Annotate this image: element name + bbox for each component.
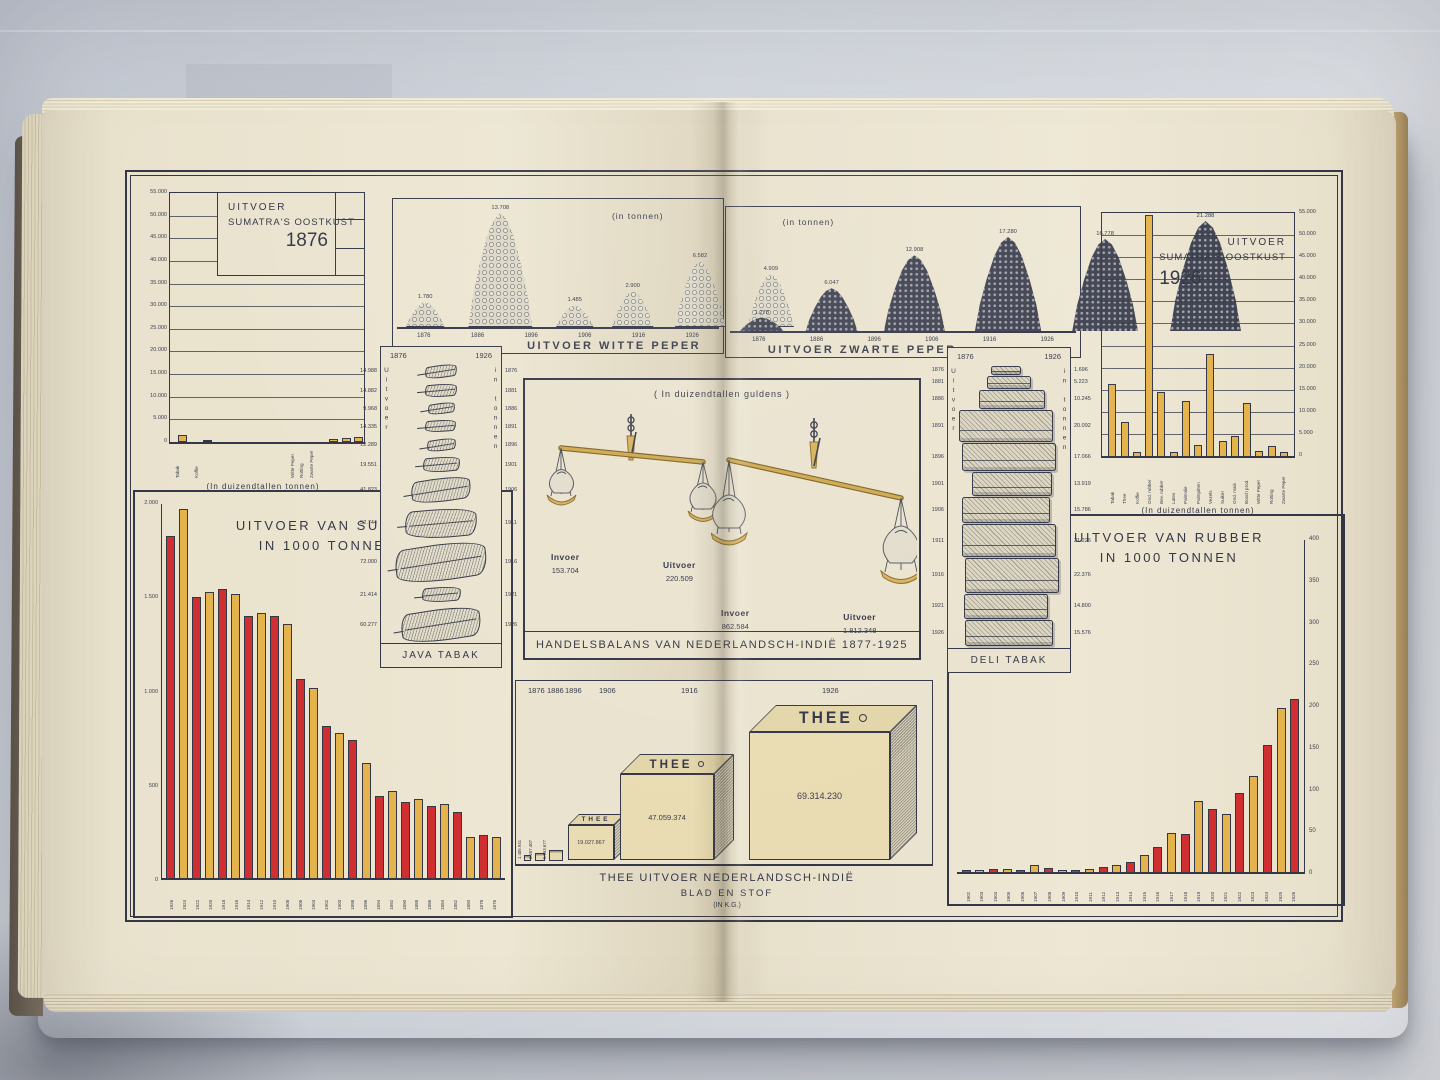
leaf-vein <box>428 425 455 428</box>
tobacco-bale <box>987 376 1031 389</box>
tobacco-leaf <box>422 456 460 474</box>
y-axis-tick: 1.000 <box>137 689 158 695</box>
y-axis-tick: 50.000 <box>140 212 167 218</box>
x-label: Suiker <box>1220 462 1225 504</box>
leaf-vein <box>414 486 467 495</box>
pile-value-label: 13.708 <box>491 205 509 211</box>
x-label: 1888 <box>414 884 419 910</box>
x-label: 1876 <box>492 884 497 910</box>
x-label: 1892 <box>389 884 394 910</box>
y-axis-tick: 50.000 <box>1299 231 1329 237</box>
tobacco-leaf <box>421 586 461 605</box>
bar-1922 <box>1235 793 1244 872</box>
bar-bosch-prod- <box>1243 403 1251 456</box>
pile-slot: 6.047 <box>794 211 870 331</box>
gridline <box>170 397 364 398</box>
row-label-right: 13.919 <box>1074 481 1108 487</box>
gridline <box>170 329 364 330</box>
bar-tabak <box>1108 384 1116 456</box>
bar-1902 <box>322 726 331 878</box>
plot-oostkust-1926: UITVOER SUMATRA'S OOSTKUST 1926 55.00050… <box>1101 212 1295 458</box>
x-label: Rotting <box>299 448 304 478</box>
x-label: 1907 <box>1033 876 1038 902</box>
uitvoer-label: Uitvoer <box>843 612 876 622</box>
bar-1907 <box>1030 865 1039 873</box>
row-label-right: 1901 <box>505 462 539 468</box>
chart-title: DELI TABAK <box>948 648 1070 672</box>
row-label-left: 9.968 <box>341 406 377 412</box>
bar-1915 <box>1140 855 1149 872</box>
x-label: 1896 <box>363 884 368 910</box>
row-label-left: 60.277 <box>341 622 377 628</box>
tobacco-leaf-rows: 14.988187614.88218819.968188614.33518911… <box>395 365 487 641</box>
balance-scale-1925 <box>711 416 917 620</box>
bar-1888 <box>414 799 423 878</box>
x-label: 1918 <box>1183 876 1188 902</box>
row-label-left: 1911 <box>908 538 944 544</box>
invoer-label: Invoer <box>721 608 750 618</box>
y-axis-tick: 25.000 <box>1299 342 1329 348</box>
panel-handelsbalans: ( In duizendtallen guldens ) <box>523 378 921 660</box>
chart-title-line: THEE UITVOER NEDERLANDSCH-INDIË <box>557 872 897 884</box>
x-label: 1922 <box>1237 876 1242 902</box>
chest-front: 69.314.230 <box>749 732 890 860</box>
chart-title-line: IN 1000 TONNEN <box>1059 550 1279 565</box>
row-label-right: 1921 <box>505 592 539 598</box>
row-label-right: 21.226 <box>1074 538 1108 544</box>
pepper-pile-row: 1.78013.7081.4852.9006.5824.909 <box>397 203 719 329</box>
bar-1926 <box>166 536 175 878</box>
y-axis-tick: 10.000 <box>140 393 167 399</box>
invoer-value: 862.584 <box>721 622 750 631</box>
x-label: Witte Peper <box>1256 462 1261 504</box>
bar-1892 <box>388 791 397 878</box>
tea-chest: THEE19.027.867 <box>568 825 614 860</box>
x-label: 1904 <box>993 876 998 902</box>
row-label-right: 22.376 <box>1074 572 1108 578</box>
uitvoer-value: 1.812.348 <box>843 626 876 635</box>
pile-value-label: 12.908 <box>906 247 924 253</box>
bar-bev--rubber <box>1157 392 1165 457</box>
bale-strap <box>966 580 1058 581</box>
x-axis-labels: 1926192419221920191819161914191219101908… <box>161 884 505 912</box>
y-axis-tick: 40.000 <box>1299 275 1329 281</box>
x-label: 1903 <box>979 876 984 902</box>
y-axis-tick: 300 <box>1309 620 1335 626</box>
invoer-value: 153.704 <box>551 566 580 575</box>
bale-strap <box>963 513 1049 514</box>
leaf-vein <box>406 619 477 631</box>
tobacco-leaf <box>427 401 455 416</box>
row-label-left: 1886 <box>908 396 944 402</box>
pile-value-label: 6.582 <box>693 253 708 259</box>
white-pepper-pile <box>453 213 547 327</box>
chart-title: HANDELSBALANS VAN NEDERLANDSCH-INDIË 187… <box>525 631 919 658</box>
y-axis-tick: 30.000 <box>1299 319 1329 325</box>
y-axis-tick: 35.000 <box>1299 297 1329 303</box>
y-axis-tick: 20.000 <box>1299 364 1329 370</box>
x-label: Tabak <box>175 448 180 478</box>
x-label: 1904 <box>311 884 316 910</box>
pictorial-row: 60.2771926 <box>395 609 487 641</box>
thee-chart-title: THEE UITVOER NEDERLANDSCH-INDIË BLAD EN … <box>557 872 897 909</box>
x-label: Witte Peper <box>290 448 295 478</box>
pile-slot: 1.278 <box>730 211 794 331</box>
y-axis-tick: 20.000 <box>140 347 167 353</box>
tobacco-bale <box>965 620 1052 646</box>
x-label: 1884 <box>440 884 445 910</box>
bale-strap <box>992 371 1019 372</box>
bar-1900 <box>335 733 344 878</box>
leaf-vein <box>425 463 457 467</box>
title-box-1876: UITVOER SUMATRA'S OOSTKUST 1876 <box>217 192 365 276</box>
bar-1908 <box>1044 868 1053 872</box>
x-axis-labels: TabakTheeKoffieOnd. rubberBev. rubberLat… <box>1103 462 1293 504</box>
y-axis-tick: 150 <box>1309 745 1335 751</box>
x-label: 1900 <box>337 884 342 910</box>
y-axis-tick: 100 <box>1309 787 1335 793</box>
leaf-vein <box>429 443 454 448</box>
panel-thee: 187618861896190619161926 1.405.9413.267.… <box>515 680 933 866</box>
x-axis-labels: 1902190319041905190619071908190919101911… <box>957 876 1305 902</box>
tobacco-leaf <box>426 437 456 453</box>
range-end-year: 1926 <box>1044 352 1061 361</box>
x-label: Thee <box>1122 462 1127 504</box>
uitvoer-label: Uitvoer <box>663 560 696 570</box>
uitvoer-value: 220.509 <box>663 574 696 583</box>
bar-1917 <box>1167 833 1176 872</box>
bar-1926 <box>1290 699 1299 872</box>
y-axis-tick: 55.000 <box>1299 209 1329 215</box>
white-pepper-pile <box>397 302 453 327</box>
bar-1909 <box>1058 870 1067 873</box>
bar-1902 <box>962 870 971 872</box>
bar-suiker <box>1219 441 1227 456</box>
row-label-left: 21.414 <box>341 592 377 598</box>
x-label: 1919 <box>1196 876 1201 902</box>
x-label: 1926 <box>1291 876 1296 902</box>
y-axis-tick: 500 <box>137 783 158 789</box>
row-label-left: 19.551 <box>341 462 377 468</box>
white-pepper-pile <box>547 305 602 327</box>
x-label: 1914 <box>1128 876 1133 902</box>
chart-title-year: 1926 <box>1159 268 1286 290</box>
row-label-left: 1916 <box>908 572 944 578</box>
row-label-right: 1906 <box>505 487 539 493</box>
row-label-right: 17.066 <box>1074 454 1108 460</box>
leaf-vein <box>400 555 482 569</box>
y-axis-tick: 15.000 <box>140 370 167 376</box>
bar-koffie <box>203 440 212 442</box>
year-label: 1876 <box>397 333 451 345</box>
bar-1906 <box>296 679 305 878</box>
chest-front: 47.059.374 <box>620 774 714 860</box>
x-label: 1906 <box>1020 876 1025 902</box>
bar-1882 <box>453 812 462 878</box>
bar-1911 <box>1085 869 1094 872</box>
year-label: 1876 <box>528 686 545 695</box>
chart-title: UITVOER VAN RUBBER IN 1000 TONNEN <box>1059 530 1279 570</box>
x-label: 1906 <box>298 884 303 910</box>
tea-chest: THEE69.314.230 <box>749 732 890 860</box>
x-label: 1924 <box>1264 876 1269 902</box>
bar-palmolie <box>1182 401 1190 456</box>
year-label: 1896 <box>565 686 582 695</box>
bar-vezels <box>1206 354 1214 456</box>
bar-1880 <box>466 837 475 878</box>
bar-witte-peper <box>1255 451 1263 456</box>
x-label: Rotting <box>1269 462 1274 504</box>
pile-slot: 13.708 <box>453 203 547 327</box>
year-label: 1906 <box>599 686 616 695</box>
panel-witte-peper: (in tonnen) 1.78013.7081.4852.9006.5824.… <box>392 198 724 354</box>
bar-1921 <box>1222 814 1231 872</box>
bar-1918 <box>218 589 227 878</box>
bar-1905 <box>1003 869 1012 872</box>
title-box-grid <box>335 192 365 276</box>
y-axis-tick: 0 <box>1309 870 1335 876</box>
background-seam <box>0 30 1440 32</box>
leaf-vein <box>409 520 473 527</box>
pile-slot: 1.780 <box>397 203 453 327</box>
x-label: 1914 <box>246 884 251 910</box>
chest-label: THEE <box>582 816 611 823</box>
range-end-year: 1926 <box>475 351 492 360</box>
side-label-uitvoer: Uitvoer <box>383 367 390 434</box>
pictorial-row: 192114.800 <box>962 594 1056 619</box>
row-label-left: 14.988 <box>341 368 377 374</box>
bar-1924 <box>179 509 188 878</box>
x-label: 1915 <box>1142 876 1147 902</box>
pictorial-row: 52.7441911 <box>395 509 487 538</box>
tobacco-bale <box>972 472 1052 496</box>
chart-title-line: SUMATRA'S OOSTKUST <box>1159 252 1286 263</box>
bar-1918 <box>1181 834 1190 872</box>
x-label: 1926 <box>169 884 174 910</box>
y-axis-tick: 0 <box>1299 452 1329 458</box>
x-label: 1886 <box>427 884 432 910</box>
bar-latex <box>1170 452 1178 456</box>
pictorial-row: 190113.919 <box>962 472 1056 496</box>
pile-slot: 2.900 <box>602 203 663 327</box>
row-label-right: 1896 <box>505 442 539 448</box>
x-label: Ond. mais <box>1232 462 1237 504</box>
row-label-right: 15.786 <box>1074 507 1108 513</box>
bar-1920 <box>1208 809 1217 872</box>
leaf-stem <box>418 428 428 430</box>
x-label: 1918 <box>221 884 226 910</box>
tobacco-bale <box>965 558 1059 593</box>
tobacco-leaf <box>425 383 458 398</box>
pile-value-label: 1.278 <box>755 310 770 316</box>
bale-strap <box>965 609 1047 610</box>
side-label-uitvoer: Uitvoer <box>950 368 957 435</box>
pictorial-row: 41.8231906 <box>395 478 487 502</box>
y-axis-tick: 30.000 <box>140 302 167 308</box>
leaf-vein <box>427 389 454 392</box>
bar-1896 <box>362 763 371 878</box>
tobacco-leaf <box>404 506 478 541</box>
tobacco-bale <box>962 443 1056 471</box>
leaf-stem <box>415 466 425 468</box>
pile-value-label: 17.280 <box>999 229 1017 235</box>
bale-strap <box>988 383 1030 384</box>
open-book: UITVOER SUMATRA'S OOSTKUST 1876 55.00050… <box>28 96 1400 1020</box>
x-label: 1916 <box>234 884 239 910</box>
bar-ond--rubber <box>1145 215 1153 456</box>
leaf-stem <box>414 596 424 598</box>
x-label: 1878 <box>479 884 484 910</box>
pictorial-row: 18761.696 <box>962 366 1056 375</box>
pepper-pile-row: 1.2786.04712.90817.28016.77821.288 <box>730 211 1076 333</box>
x-label: Ond. rubber <box>1147 462 1152 504</box>
tobacco-leaf <box>399 603 483 647</box>
title-block-1926: UITVOER SUMATRA'S OOSTKUST 1926 <box>1159 237 1286 290</box>
y-axis-tick: 400 <box>1309 536 1335 542</box>
row-label-left: 1891 <box>908 423 944 429</box>
bar-1910 <box>270 616 279 878</box>
white-pepper-pile <box>602 291 663 327</box>
bar-ond--mais <box>1231 436 1239 456</box>
bar-1903 <box>975 870 984 873</box>
value-label: 1.405.941 <box>517 840 522 859</box>
y-axis-tick: 250 <box>1309 661 1335 667</box>
leaf-stem <box>397 526 407 528</box>
pile-slot: 17.280 <box>959 211 1057 331</box>
y-axis-tick: 5.000 <box>140 415 167 421</box>
x-label: Palmpitten <box>1196 462 1201 504</box>
tea-chest: THEE47.059.374 <box>620 774 714 860</box>
x-label: 1898 <box>350 884 355 910</box>
leaf-stem <box>388 569 398 572</box>
x-label: 1880 <box>466 884 471 910</box>
y-axis-tick: 10.000 <box>1299 408 1329 414</box>
chest-lid: THEE <box>749 705 917 732</box>
leaf-stem <box>394 631 404 634</box>
row-label-right: 15.576 <box>1074 630 1108 636</box>
tobacco-bale <box>959 410 1053 442</box>
bar-1876 <box>492 837 501 878</box>
bar-1906 <box>1016 870 1025 873</box>
row-label-right: 1881 <box>505 388 539 394</box>
bale-strap <box>966 636 1051 637</box>
chart-title-line: BLAD EN STOF <box>557 888 897 899</box>
row-label-right: 10.245 <box>1074 396 1108 402</box>
pile-slot: 1.485 <box>547 203 602 327</box>
x-label: 1910 <box>1074 876 1079 902</box>
year-label: 1916 <box>681 686 698 695</box>
pictorial-row: 12.2891896 <box>395 439 487 451</box>
leaf-vein <box>427 369 454 374</box>
balance-scale-1877 <box>545 412 717 556</box>
gridline <box>170 374 364 375</box>
x-label: 1917 <box>1169 876 1174 902</box>
bar-1898 <box>348 740 357 878</box>
bar-1924 <box>1263 745 1272 872</box>
side-label-in-tonnen: in tonnen <box>492 367 499 453</box>
tobacco-bale <box>991 366 1020 375</box>
bar-1886 <box>427 806 436 878</box>
panel-oostkust-1926: UITVOER SUMATRA'S OOSTKUST 1926 55.00050… <box>1095 202 1345 524</box>
pictorial-row: 19.5511901 <box>395 457 487 472</box>
x-label: Palmolie <box>1183 462 1188 504</box>
x-label: 1902 <box>324 884 329 910</box>
row-label-right: 1876 <box>505 368 539 374</box>
chart-title: UITVOER WITTE PEPER <box>512 340 717 352</box>
row-label-left: 1901 <box>908 481 944 487</box>
chest-label: THEE <box>799 709 853 728</box>
bar-1914 <box>1126 862 1135 872</box>
bale-strap <box>973 487 1051 488</box>
leaf-vein <box>424 593 458 597</box>
x-label: Zwarte Peper <box>1281 462 1286 504</box>
x-label: 1920 <box>208 884 213 910</box>
row-label-left: 1876 <box>908 367 944 373</box>
range-start-year: 1876 <box>957 352 974 361</box>
pictorial-row: 192615.576 <box>962 620 1056 646</box>
bar-1923 <box>1249 776 1258 872</box>
x-label: Tabak <box>1110 462 1115 504</box>
bar-thee <box>1121 422 1129 456</box>
x-label: 1882 <box>453 884 458 910</box>
y-axis-tick: 40.000 <box>140 257 167 263</box>
bar-1910 <box>1071 870 1080 873</box>
pile-value-label: 2.900 <box>625 283 640 289</box>
x-label: 1912 <box>1101 876 1106 902</box>
pictorial-row: 9.9681886 <box>395 403 487 414</box>
bar-koffie <box>1133 452 1141 456</box>
row-label-left: 12.289 <box>341 442 377 448</box>
row-label-left: 1881 <box>908 379 944 385</box>
scale-pan-label: Uitvoer 220.509 <box>663 560 696 583</box>
y-axis-tick: 15.000 <box>1299 386 1329 392</box>
black-pepper-pile <box>794 288 870 331</box>
tobacco-leaf <box>424 363 457 381</box>
leaf-stem <box>419 447 429 450</box>
panel-zwarte-peper: (in tonnen) 1.2786.04712.90817.28016.778… <box>725 206 1081 358</box>
x-label: 1908 <box>285 884 290 910</box>
pile-value-label: 1.485 <box>567 297 582 303</box>
year-label: 1886 <box>451 333 505 345</box>
scale-pan-label: Invoer 862.584 <box>721 608 750 631</box>
x-label: 1905 <box>1006 876 1011 902</box>
bar-1925 <box>1277 708 1286 872</box>
x-label: Bosch prod. <box>1244 462 1249 504</box>
black-pepper-pile <box>870 255 960 331</box>
row-label-left: 14.882 <box>341 388 377 394</box>
y-axis-tick: 35.000 <box>140 280 167 286</box>
row-label-left: 41.823 <box>341 487 377 493</box>
unit-label: ( In duizendtallen guldens ) <box>525 389 919 399</box>
bar-1913 <box>1112 865 1121 872</box>
bar-tabak <box>178 435 187 442</box>
y-axis-tick: 45.000 <box>140 234 167 240</box>
row-label-left: 1906 <box>908 507 944 513</box>
scale-pan-label: Uitvoer 1.812.348 <box>843 612 876 635</box>
bar-1878 <box>479 835 488 878</box>
chest-side <box>714 754 734 860</box>
y-axis-tick: 200 <box>1309 703 1335 709</box>
x-label: 1913 <box>1115 876 1120 902</box>
range-start-year: 1876 <box>390 351 407 360</box>
x-label: 1925 <box>1278 876 1283 902</box>
gridline <box>170 284 364 285</box>
y-axis-tick: 350 <box>1309 578 1335 584</box>
x-label: 1910 <box>272 884 277 910</box>
bar-zwarte-peper <box>1280 452 1288 456</box>
pictorial-row: 191622.376 <box>962 558 1056 593</box>
pictorial-row: 14.8821881 <box>395 384 487 397</box>
